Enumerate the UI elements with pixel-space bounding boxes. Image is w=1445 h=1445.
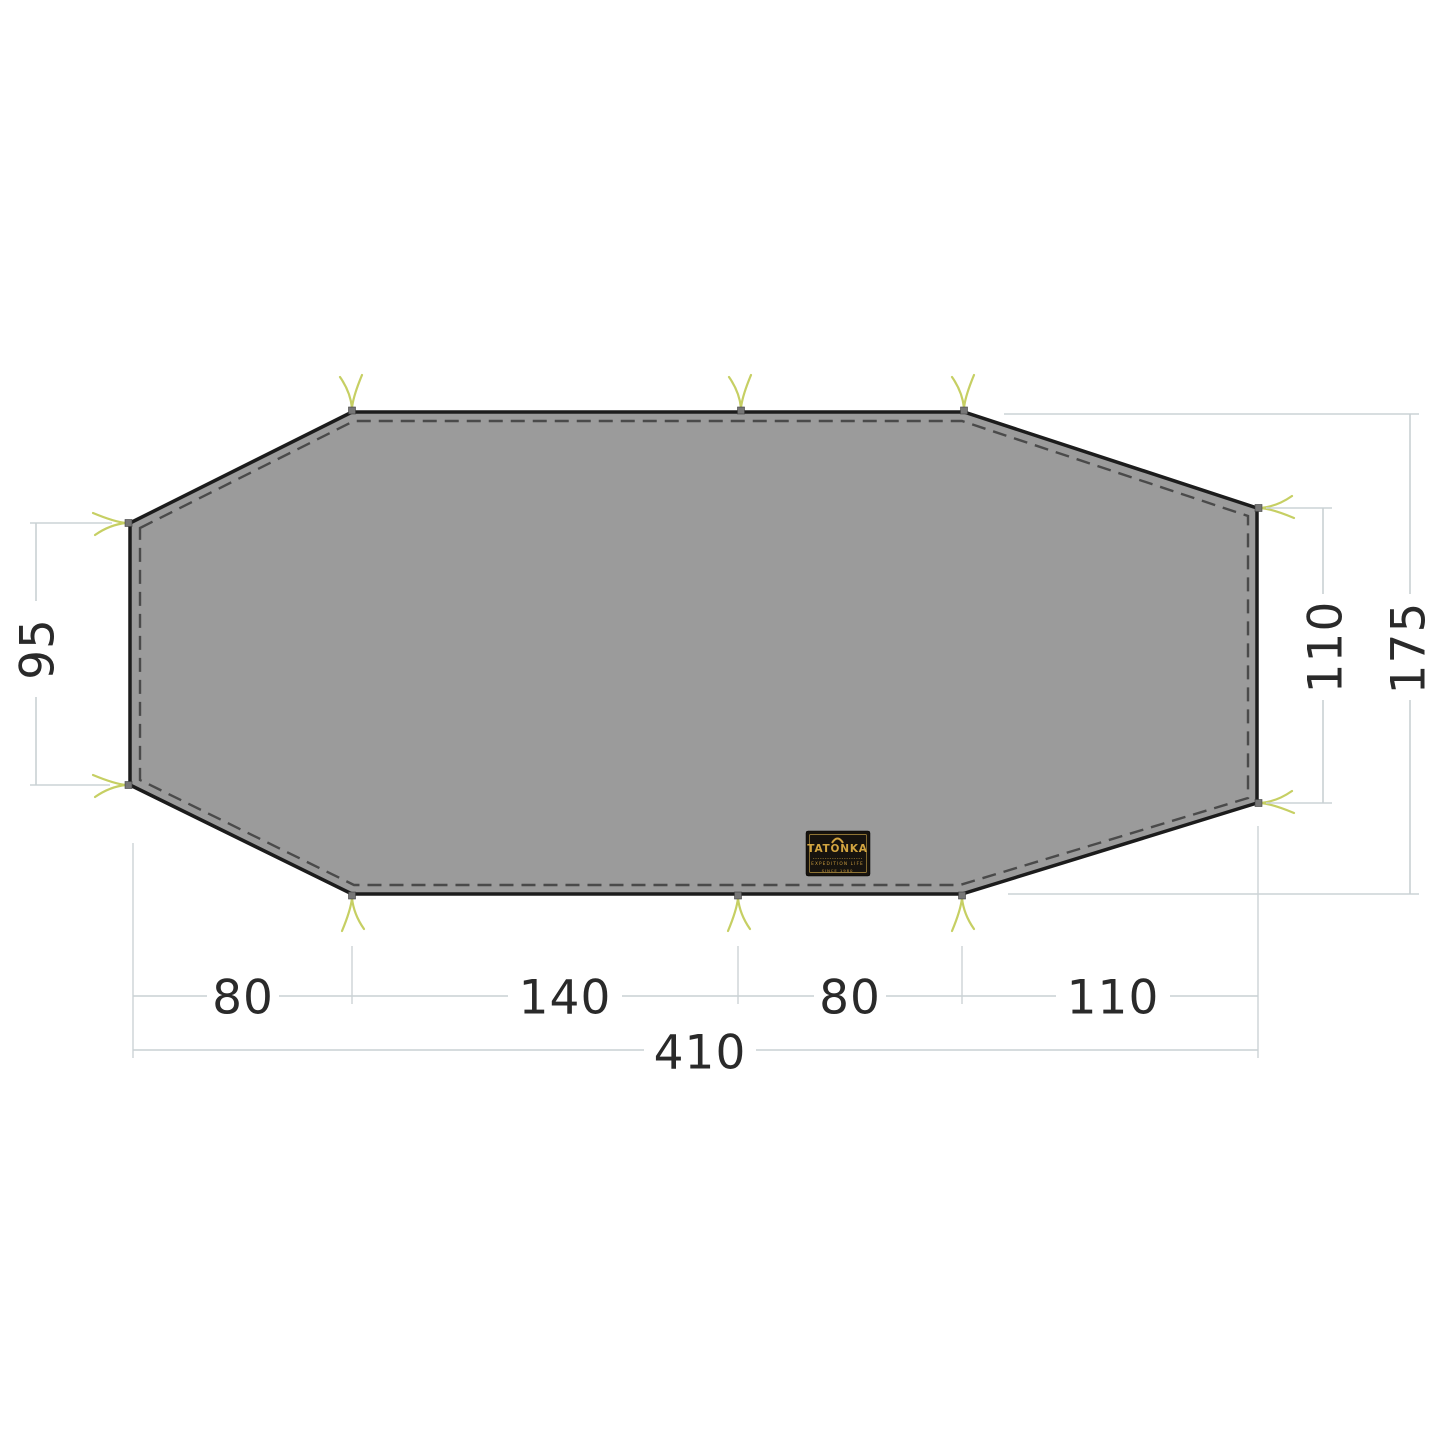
guy-loop-icon: [952, 892, 974, 931]
guy-loop-icon: [93, 513, 132, 535]
dim-label-95: 95: [11, 618, 66, 680]
dim-label-140: 140: [519, 971, 612, 1026]
guy-loop-icon: [93, 775, 132, 797]
dim-110: 110: [1266, 508, 1354, 803]
footprint-outline: [130, 412, 1257, 894]
guy-loop-icon: [342, 892, 364, 931]
tatonka-tagline: EXPEDITION LIFE: [811, 861, 864, 867]
dim-label-175: 175: [1382, 602, 1437, 695]
dim-label-80-left: 80: [212, 971, 274, 1026]
guy-loop-icon: [340, 375, 362, 414]
dim-95: 95: [11, 523, 113, 785]
diagram-canvas: 95 110 175: [0, 0, 1445, 1445]
tatonka-label: TATONKA EXPEDITION LIFE SINCE 1980: [806, 831, 870, 876]
guy-loop-icon: [1255, 496, 1294, 518]
guy-loop-icon: [729, 375, 751, 414]
tatonka-since: SINCE 1980: [822, 868, 854, 873]
guy-loop-icon: [1255, 791, 1294, 813]
dim-410: 410: [133, 1026, 1258, 1081]
dim-label-80-right: 80: [819, 971, 881, 1026]
dim-bottom-segments: 80 140 80 110: [133, 971, 1258, 1026]
tatonka-logo-text: TATONKA: [807, 843, 867, 855]
footprint-shape: [130, 412, 1257, 894]
dim-label-110-right: 110: [1299, 601, 1354, 694]
guy-loop-icon: [728, 892, 750, 931]
dim-label-110-bottom: 110: [1067, 971, 1160, 1026]
guy-loop-icon: [952, 375, 974, 414]
footprint-diagram: 95 110 175: [0, 0, 1445, 1445]
dim-label-410: 410: [654, 1026, 747, 1081]
